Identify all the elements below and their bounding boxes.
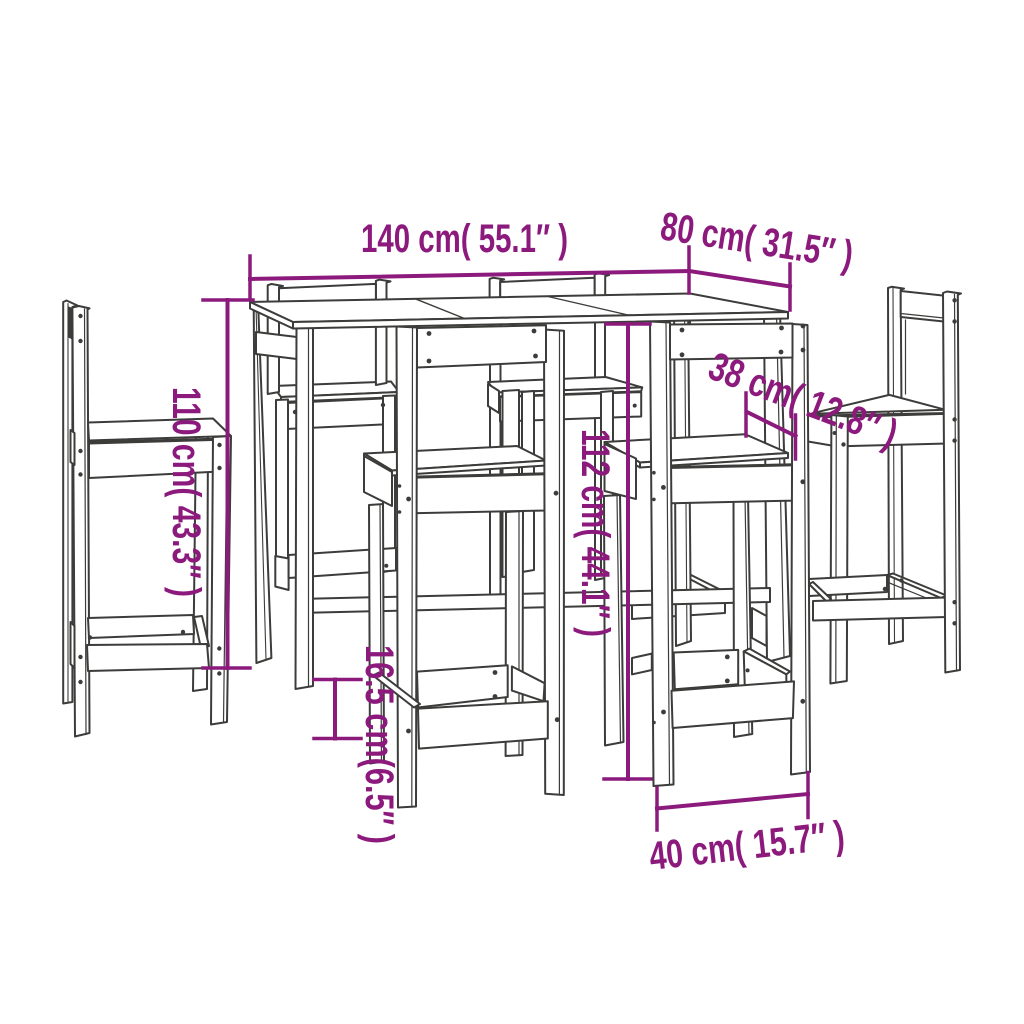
svg-text:16.5 cm(6.5″ ): 16.5 cm(6.5″ ) [357, 645, 401, 844]
svg-text:140 cm( 55.1″ ): 140 cm( 55.1″ ) [361, 217, 568, 261]
svg-text:110 cm( 43.3″ ): 110 cm( 43.3″ ) [164, 387, 208, 597]
svg-text:112 cm( 44.1″ ): 112 cm( 44.1″ ) [573, 429, 617, 637]
